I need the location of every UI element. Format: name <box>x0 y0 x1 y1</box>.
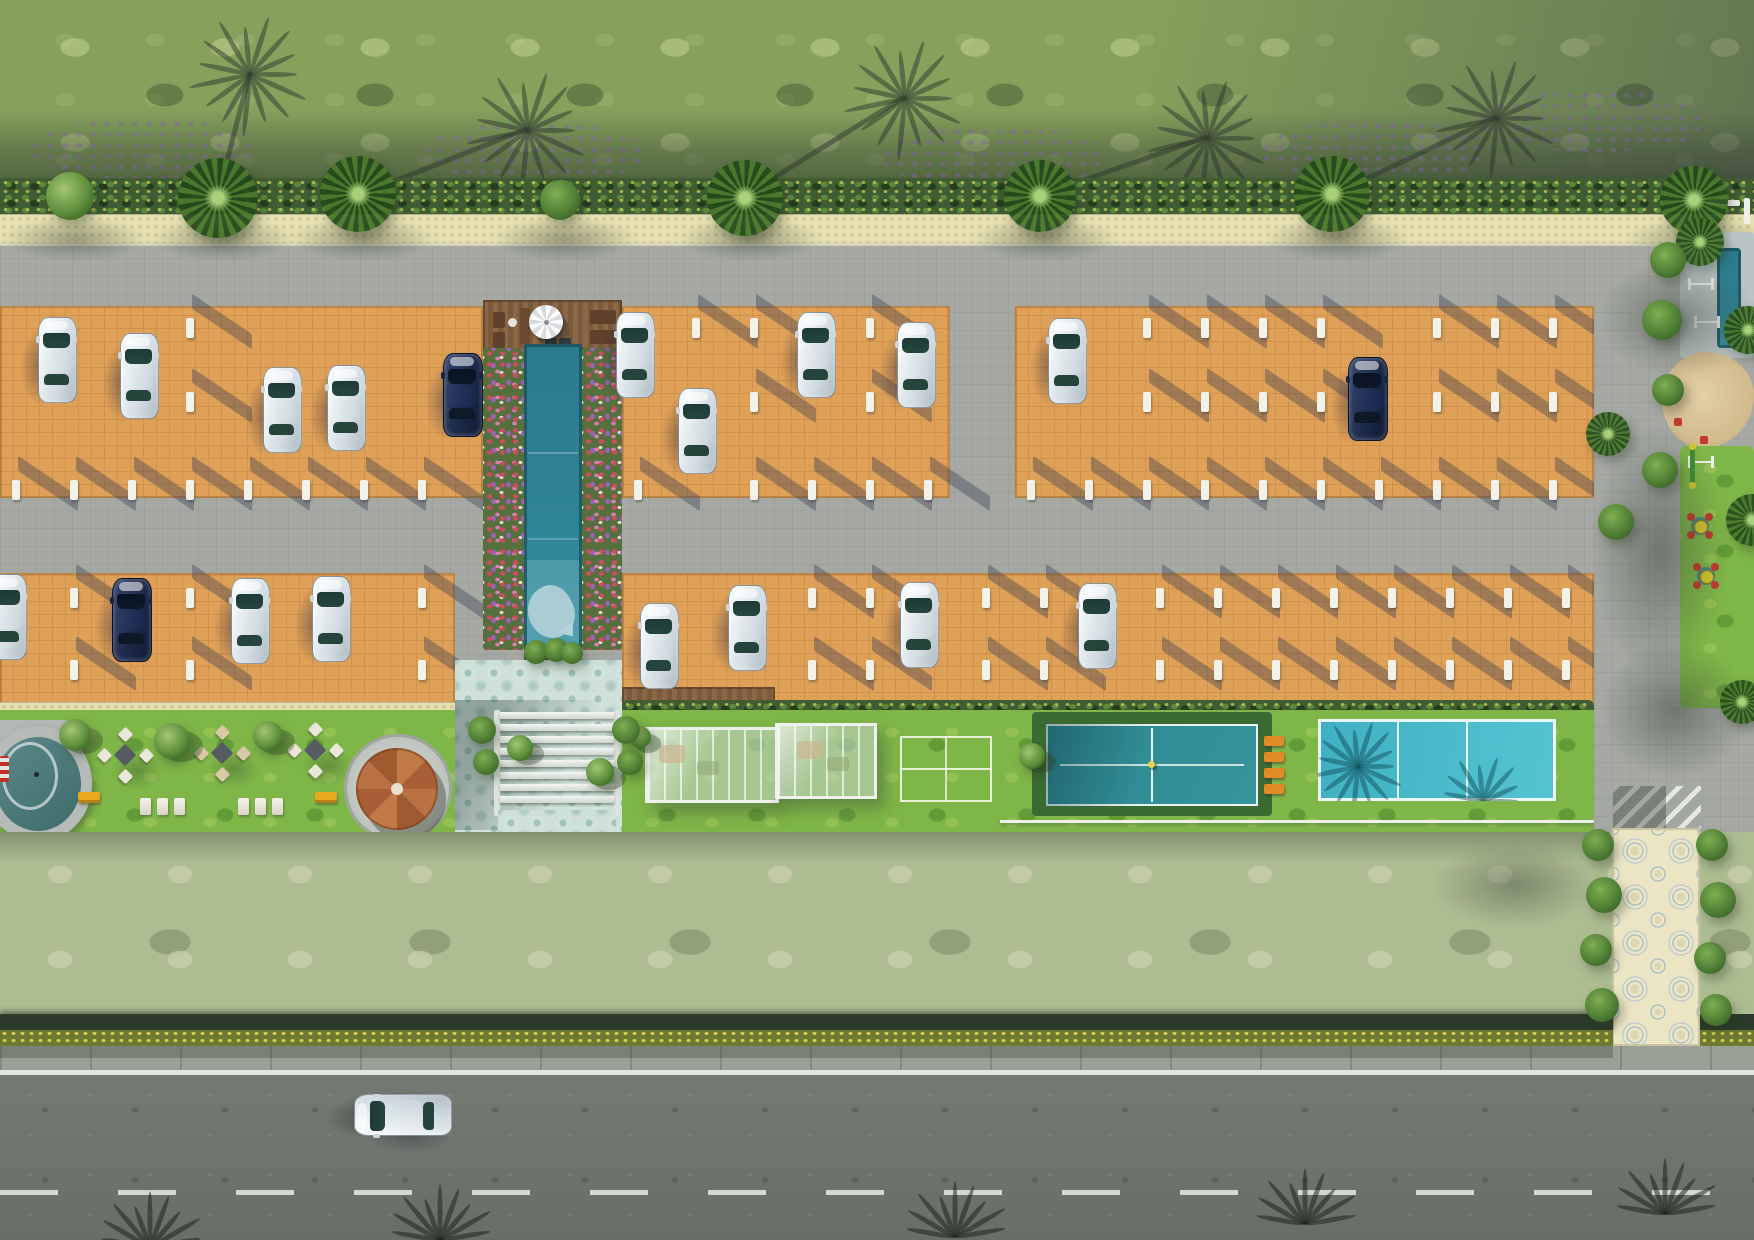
car-roof <box>42 350 71 372</box>
car-mirror <box>1113 602 1117 609</box>
car <box>120 333 157 417</box>
car-body <box>354 1094 452 1136</box>
wheel-stop <box>1549 480 1557 500</box>
car-hood-highlight <box>358 1103 367 1129</box>
car-rear-window <box>734 642 759 653</box>
sun-lounger <box>272 798 283 815</box>
wheel-stop <box>1388 588 1396 608</box>
car-windshield <box>683 404 710 419</box>
car-roof <box>1052 351 1081 373</box>
car <box>0 574 25 658</box>
car-body <box>678 388 717 474</box>
car-roof <box>447 386 477 406</box>
car <box>1348 357 1386 439</box>
car-hood-highlight <box>907 586 930 595</box>
pavilion-interior <box>797 741 823 759</box>
car-windshield <box>125 349 152 364</box>
wheel-stop <box>186 588 194 608</box>
wheel-stop <box>1272 660 1280 680</box>
car-mirror <box>362 384 366 391</box>
car-mirror <box>23 593 27 600</box>
car-body <box>0 574 27 660</box>
wheel-stop <box>418 480 426 500</box>
car-mirror <box>373 1094 380 1098</box>
wheel-stop <box>418 588 426 608</box>
car-mirror <box>479 372 483 379</box>
car-body <box>38 317 77 403</box>
car-hood-highlight <box>735 589 758 598</box>
car-rear-window <box>318 633 343 644</box>
car-body <box>640 603 679 689</box>
wheel-stop <box>1446 660 1454 680</box>
car-mirror <box>932 341 936 348</box>
wheel-stop <box>866 588 874 608</box>
bush-walkway <box>1580 934 1612 966</box>
car-hood-highlight <box>647 607 670 616</box>
bush-stair-planter <box>468 716 496 744</box>
hedge-row-north <box>0 178 1754 216</box>
car-mirror <box>118 352 122 359</box>
car <box>263 367 300 451</box>
car-hood-highlight <box>319 580 342 589</box>
car-rear-window <box>622 369 647 380</box>
wheel-stop <box>1562 660 1570 680</box>
wheel-stop <box>1491 480 1499 500</box>
wheel-stop <box>1375 480 1383 500</box>
car-hood-highlight <box>1055 322 1078 331</box>
wheel-stop <box>70 660 78 680</box>
car-roof <box>387 1100 421 1132</box>
car-hood-highlight <box>804 316 827 325</box>
car <box>678 388 715 472</box>
car-windshield <box>905 598 932 613</box>
car-rear-window <box>126 390 151 401</box>
flower-hedge-south-right <box>1700 1030 1754 1046</box>
car-roof <box>644 636 673 658</box>
car-roof <box>901 355 930 377</box>
car-mirror <box>1046 337 1050 344</box>
car-roof <box>620 345 649 367</box>
palm-crown-highlight <box>1027 183 1052 208</box>
wheel-stop <box>808 588 816 608</box>
pavilion-interior <box>659 745 685 763</box>
palm-crown-highlight <box>1600 426 1615 441</box>
court-rail <box>1000 820 1610 823</box>
wheel-stop <box>186 480 194 500</box>
bench-yellow <box>315 792 337 803</box>
car-roof <box>1082 616 1111 638</box>
car-mirror <box>676 407 680 414</box>
bush-canopy-east <box>1642 300 1682 340</box>
car-body <box>112 578 152 662</box>
wheel-stop <box>1259 392 1267 412</box>
car <box>312 576 349 660</box>
car <box>443 353 481 435</box>
site-plan-rendering <box>0 0 1754 1240</box>
tree-canopy-amenity <box>253 721 283 751</box>
bush-walkway <box>1582 829 1614 861</box>
gate-fence <box>1744 198 1750 224</box>
car-roof <box>904 615 933 637</box>
wheel-stop <box>1201 392 1209 412</box>
car-windshield <box>1083 599 1110 614</box>
car-mirror <box>229 597 233 604</box>
palm-crown-highlight <box>1740 322 1754 339</box>
car-rear-window <box>333 422 358 433</box>
car-rear-window <box>903 379 928 390</box>
car-roof <box>801 345 830 367</box>
car-body <box>797 312 836 398</box>
crosswalk-shade <box>1613 786 1666 828</box>
bush-pool-planter <box>561 642 583 664</box>
wheel-stop <box>1317 480 1325 500</box>
car-roof <box>732 618 761 640</box>
car-roof <box>682 421 711 443</box>
bush-canopy-east <box>1642 452 1678 488</box>
wheel-stop <box>1156 588 1164 608</box>
wheel-stop <box>1504 588 1512 608</box>
person-dot <box>34 772 39 777</box>
deck-table <box>508 318 517 327</box>
car-windshield <box>733 601 760 616</box>
paddle-court <box>1318 719 1556 801</box>
tree-shade-on-paving <box>490 216 640 262</box>
wheel-stop <box>1040 588 1048 608</box>
wheel-stop <box>128 480 136 500</box>
car-mirror <box>895 341 899 348</box>
wheel-stop <box>244 480 252 500</box>
wheel-stop <box>1491 318 1499 338</box>
bench-orange <box>1264 784 1284 794</box>
car-body <box>231 578 270 664</box>
lawn-court-midline-v <box>945 736 947 802</box>
palm-crown-highlight <box>1682 188 1706 212</box>
car-windshield <box>43 333 70 348</box>
bush-walkway <box>1700 994 1732 1026</box>
car-hood-highlight <box>334 369 357 378</box>
bench-orange <box>1264 768 1284 778</box>
sun-lounger <box>174 798 185 815</box>
car-roof <box>331 398 360 420</box>
car-hood-highlight <box>270 371 293 380</box>
car-mirror <box>1384 376 1388 383</box>
car-rear-window <box>449 408 475 419</box>
bush-canopy-east <box>1598 504 1634 540</box>
car-mirror <box>155 352 159 359</box>
deck-chair <box>493 332 505 348</box>
car-mirror <box>713 407 717 414</box>
car-windshield <box>236 594 263 609</box>
car-body <box>1348 357 1388 441</box>
car-rear-window <box>1054 375 1079 386</box>
wheel-stop <box>750 392 758 412</box>
car-body <box>443 353 483 437</box>
car-roof <box>116 611 146 631</box>
car-hood-highlight <box>904 326 927 335</box>
tree-canopy-amenity <box>586 758 614 786</box>
car-windshield <box>1353 373 1381 388</box>
wheel-stop <box>1562 588 1570 608</box>
wheel-stop <box>1272 588 1280 608</box>
car-mirror <box>651 331 655 338</box>
car-mirror <box>935 601 939 608</box>
car-hood-highlight <box>623 316 646 325</box>
bush-walkway <box>1586 877 1622 913</box>
car-mirror <box>373 1134 380 1138</box>
glass-pavilion-1 <box>775 723 877 799</box>
car-hood-highlight <box>450 357 474 366</box>
tree-canopy-amenity <box>1019 743 1045 769</box>
bush-canopy-north <box>540 180 580 220</box>
car-hood-highlight <box>1085 587 1108 596</box>
wheel-stop <box>186 392 194 412</box>
wheel-stop <box>70 480 78 500</box>
wheel-stop <box>1317 392 1325 412</box>
wheel-stop <box>70 588 78 608</box>
sun-lounger <box>238 798 249 815</box>
car-windshield <box>370 1101 385 1131</box>
sun-lounger <box>255 798 266 815</box>
tree-canopy-amenity <box>59 719 91 751</box>
wheel-stop <box>866 660 874 680</box>
car-windshield <box>317 592 344 607</box>
flower-bed-left <box>483 348 524 650</box>
wheel-stop <box>186 318 194 338</box>
wheel-stop <box>12 480 20 500</box>
bench-yellow <box>78 792 100 803</box>
bush-walkway <box>1696 829 1728 861</box>
car-mirror <box>1076 602 1080 609</box>
wheel-stop <box>302 480 310 500</box>
wheel-stop <box>1317 318 1325 338</box>
wheel-stop <box>1549 318 1557 338</box>
wheel-stop <box>750 480 758 500</box>
car-hood-highlight <box>1355 361 1379 370</box>
bush-walkway <box>1585 988 1619 1022</box>
car-hood-highlight <box>127 337 150 346</box>
car-mirror <box>261 386 265 393</box>
bush-stair-planter <box>617 749 643 775</box>
wheel-stop <box>1446 588 1454 608</box>
sun-lounger <box>157 798 168 815</box>
car-roof <box>1352 390 1382 410</box>
court-line-v <box>1397 722 1399 798</box>
wheel-stop <box>360 480 368 500</box>
car-rear-window <box>646 660 671 671</box>
wheel-stop <box>186 660 194 680</box>
car-mirror <box>325 384 329 391</box>
car <box>797 312 834 396</box>
car <box>354 1096 450 1136</box>
car-windshield <box>802 328 829 343</box>
wheel-stop <box>750 318 758 338</box>
car-roof <box>235 611 264 633</box>
wheel-stop <box>924 480 932 500</box>
car-mirror <box>832 331 836 338</box>
car-mirror <box>266 597 270 604</box>
play-red-sign <box>0 756 9 782</box>
bench-orange <box>1264 752 1284 762</box>
car-mirror <box>726 604 730 611</box>
car-windshield <box>621 328 648 343</box>
wheel-stop <box>1027 480 1035 500</box>
wheel-stop <box>1214 588 1222 608</box>
bush-walkway <box>1694 942 1726 974</box>
car-rear-window <box>803 369 828 380</box>
car-rear-window <box>423 1102 434 1130</box>
car <box>640 603 677 687</box>
deck-chair <box>493 312 505 328</box>
wheel-stop <box>1040 660 1048 680</box>
wheel-stop <box>1433 392 1441 412</box>
palm-crown-highlight <box>1734 694 1749 709</box>
car-mirror <box>148 597 152 604</box>
bush-stair-planter <box>612 716 640 744</box>
car <box>728 585 765 669</box>
street <box>0 1075 1754 1240</box>
car-mirror <box>347 595 351 602</box>
wheel-stop <box>1214 660 1222 680</box>
car-windshield <box>1053 334 1080 349</box>
car-body <box>1078 583 1117 669</box>
pavilion-interior <box>827 757 849 771</box>
umbrella-pole-cap <box>544 320 549 325</box>
car-mirror <box>298 386 302 393</box>
bush-canopy-east <box>1652 374 1684 406</box>
wheel-stop <box>634 480 642 500</box>
palm-shadow-on-lawn <box>1430 840 1600 930</box>
wheel-stop <box>866 480 874 500</box>
player-dot <box>1148 761 1155 768</box>
car-body <box>900 582 939 668</box>
stair-landing <box>498 810 616 832</box>
wheel-stop <box>1504 660 1512 680</box>
car-body <box>616 312 655 398</box>
car-hood-highlight <box>685 392 708 401</box>
tennis-court <box>1046 724 1258 806</box>
wheel-stop <box>982 660 990 680</box>
wheel-stop <box>1433 318 1441 338</box>
wheel-stop <box>1330 660 1338 680</box>
car-rear-window <box>1354 412 1380 423</box>
car-roof <box>316 609 345 631</box>
palm-crown-highlight <box>204 184 232 212</box>
car-rear-window <box>0 631 19 642</box>
tree-canopy-amenity <box>154 723 190 759</box>
court-shade <box>1046 724 1163 806</box>
car-hood-highlight <box>0 578 18 587</box>
car-windshield <box>332 381 359 396</box>
wheel-stop <box>1143 480 1151 500</box>
stair-step <box>500 796 614 803</box>
bench-orange <box>1264 736 1284 746</box>
car-rear-window <box>118 633 144 644</box>
car-hood-highlight <box>119 582 143 591</box>
car-mirror <box>73 336 77 343</box>
car-windshield <box>0 590 20 605</box>
car-rear-window <box>1084 640 1109 651</box>
car-body <box>728 585 767 671</box>
car <box>327 365 364 449</box>
car-rear-window <box>44 374 69 385</box>
entry-walkway <box>1612 828 1700 1046</box>
car-windshield <box>902 338 929 353</box>
wheel-stop <box>1143 318 1151 338</box>
car <box>900 582 937 666</box>
car <box>1048 318 1085 402</box>
car <box>1078 583 1115 667</box>
wheel-stop <box>808 660 816 680</box>
street-center-dash <box>0 1190 1754 1195</box>
wheel-stop <box>1085 480 1093 500</box>
car-windshield <box>268 383 295 398</box>
car <box>231 578 268 662</box>
car-rear-window <box>269 424 294 435</box>
car-mirror <box>36 336 40 343</box>
wheel-stop <box>1143 392 1151 412</box>
car-roof <box>124 366 153 388</box>
bush-canopy-east <box>1650 242 1686 278</box>
wheel-stop <box>982 588 990 608</box>
play-oval-inner-ring <box>2 742 58 810</box>
car-rear-window <box>906 639 931 650</box>
pavilion-interior <box>697 761 719 775</box>
car-hood-highlight <box>45 321 68 330</box>
car-mirror <box>441 372 445 379</box>
flower-hedge-south <box>0 1030 1613 1046</box>
car-rear-window <box>237 635 262 646</box>
car <box>897 322 934 406</box>
car-windshield <box>117 594 145 609</box>
bush-walkway <box>1700 882 1736 918</box>
car-mirror <box>1346 376 1350 383</box>
car-roof <box>0 607 21 629</box>
car <box>616 312 653 396</box>
gazebo-roof-cap <box>391 783 403 795</box>
car-windshield <box>645 619 672 634</box>
hedge-shadow-on-sidewalk <box>0 1046 1613 1058</box>
car-body <box>120 333 159 419</box>
car-mirror <box>110 597 114 604</box>
stair-step <box>500 724 614 731</box>
wheel-stop <box>1156 660 1164 680</box>
wheel-stop <box>866 318 874 338</box>
bush-stair-planter <box>473 749 499 775</box>
car-body <box>312 576 351 662</box>
car <box>112 578 150 660</box>
car-mirror <box>1083 337 1087 344</box>
wheel-stop <box>1433 480 1441 500</box>
tree-canopy-north <box>46 172 94 220</box>
wheel-stop <box>692 318 700 338</box>
tree-canopy-amenity <box>507 735 533 761</box>
car-mirror <box>795 331 799 338</box>
wheel-stop <box>1491 392 1499 412</box>
pool-lane-line <box>528 538 578 540</box>
tree-shade-on-paving <box>0 216 150 262</box>
car-mirror <box>614 331 618 338</box>
wheel-stop <box>1201 318 1209 338</box>
car <box>38 317 75 401</box>
car-mirror <box>763 604 767 611</box>
sun-lounger <box>140 798 151 815</box>
wheel-stop <box>1201 480 1209 500</box>
car-body <box>897 322 936 408</box>
car-windshield <box>448 369 476 384</box>
wheel-stop <box>808 480 816 500</box>
car-hood-highlight <box>238 582 261 591</box>
wheel-stop <box>1549 392 1557 412</box>
